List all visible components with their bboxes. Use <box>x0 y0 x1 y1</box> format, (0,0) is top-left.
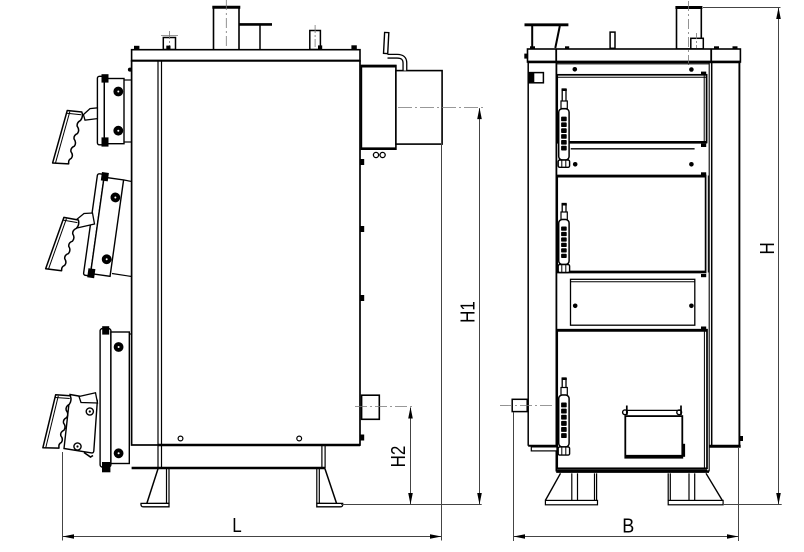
svg-text:H2: H2 <box>387 446 410 468</box>
svg-text:H: H <box>756 242 779 254</box>
svg-text:H1: H1 <box>456 301 479 323</box>
svg-text:L: L <box>232 514 241 537</box>
svg-text:B: B <box>622 516 634 538</box>
